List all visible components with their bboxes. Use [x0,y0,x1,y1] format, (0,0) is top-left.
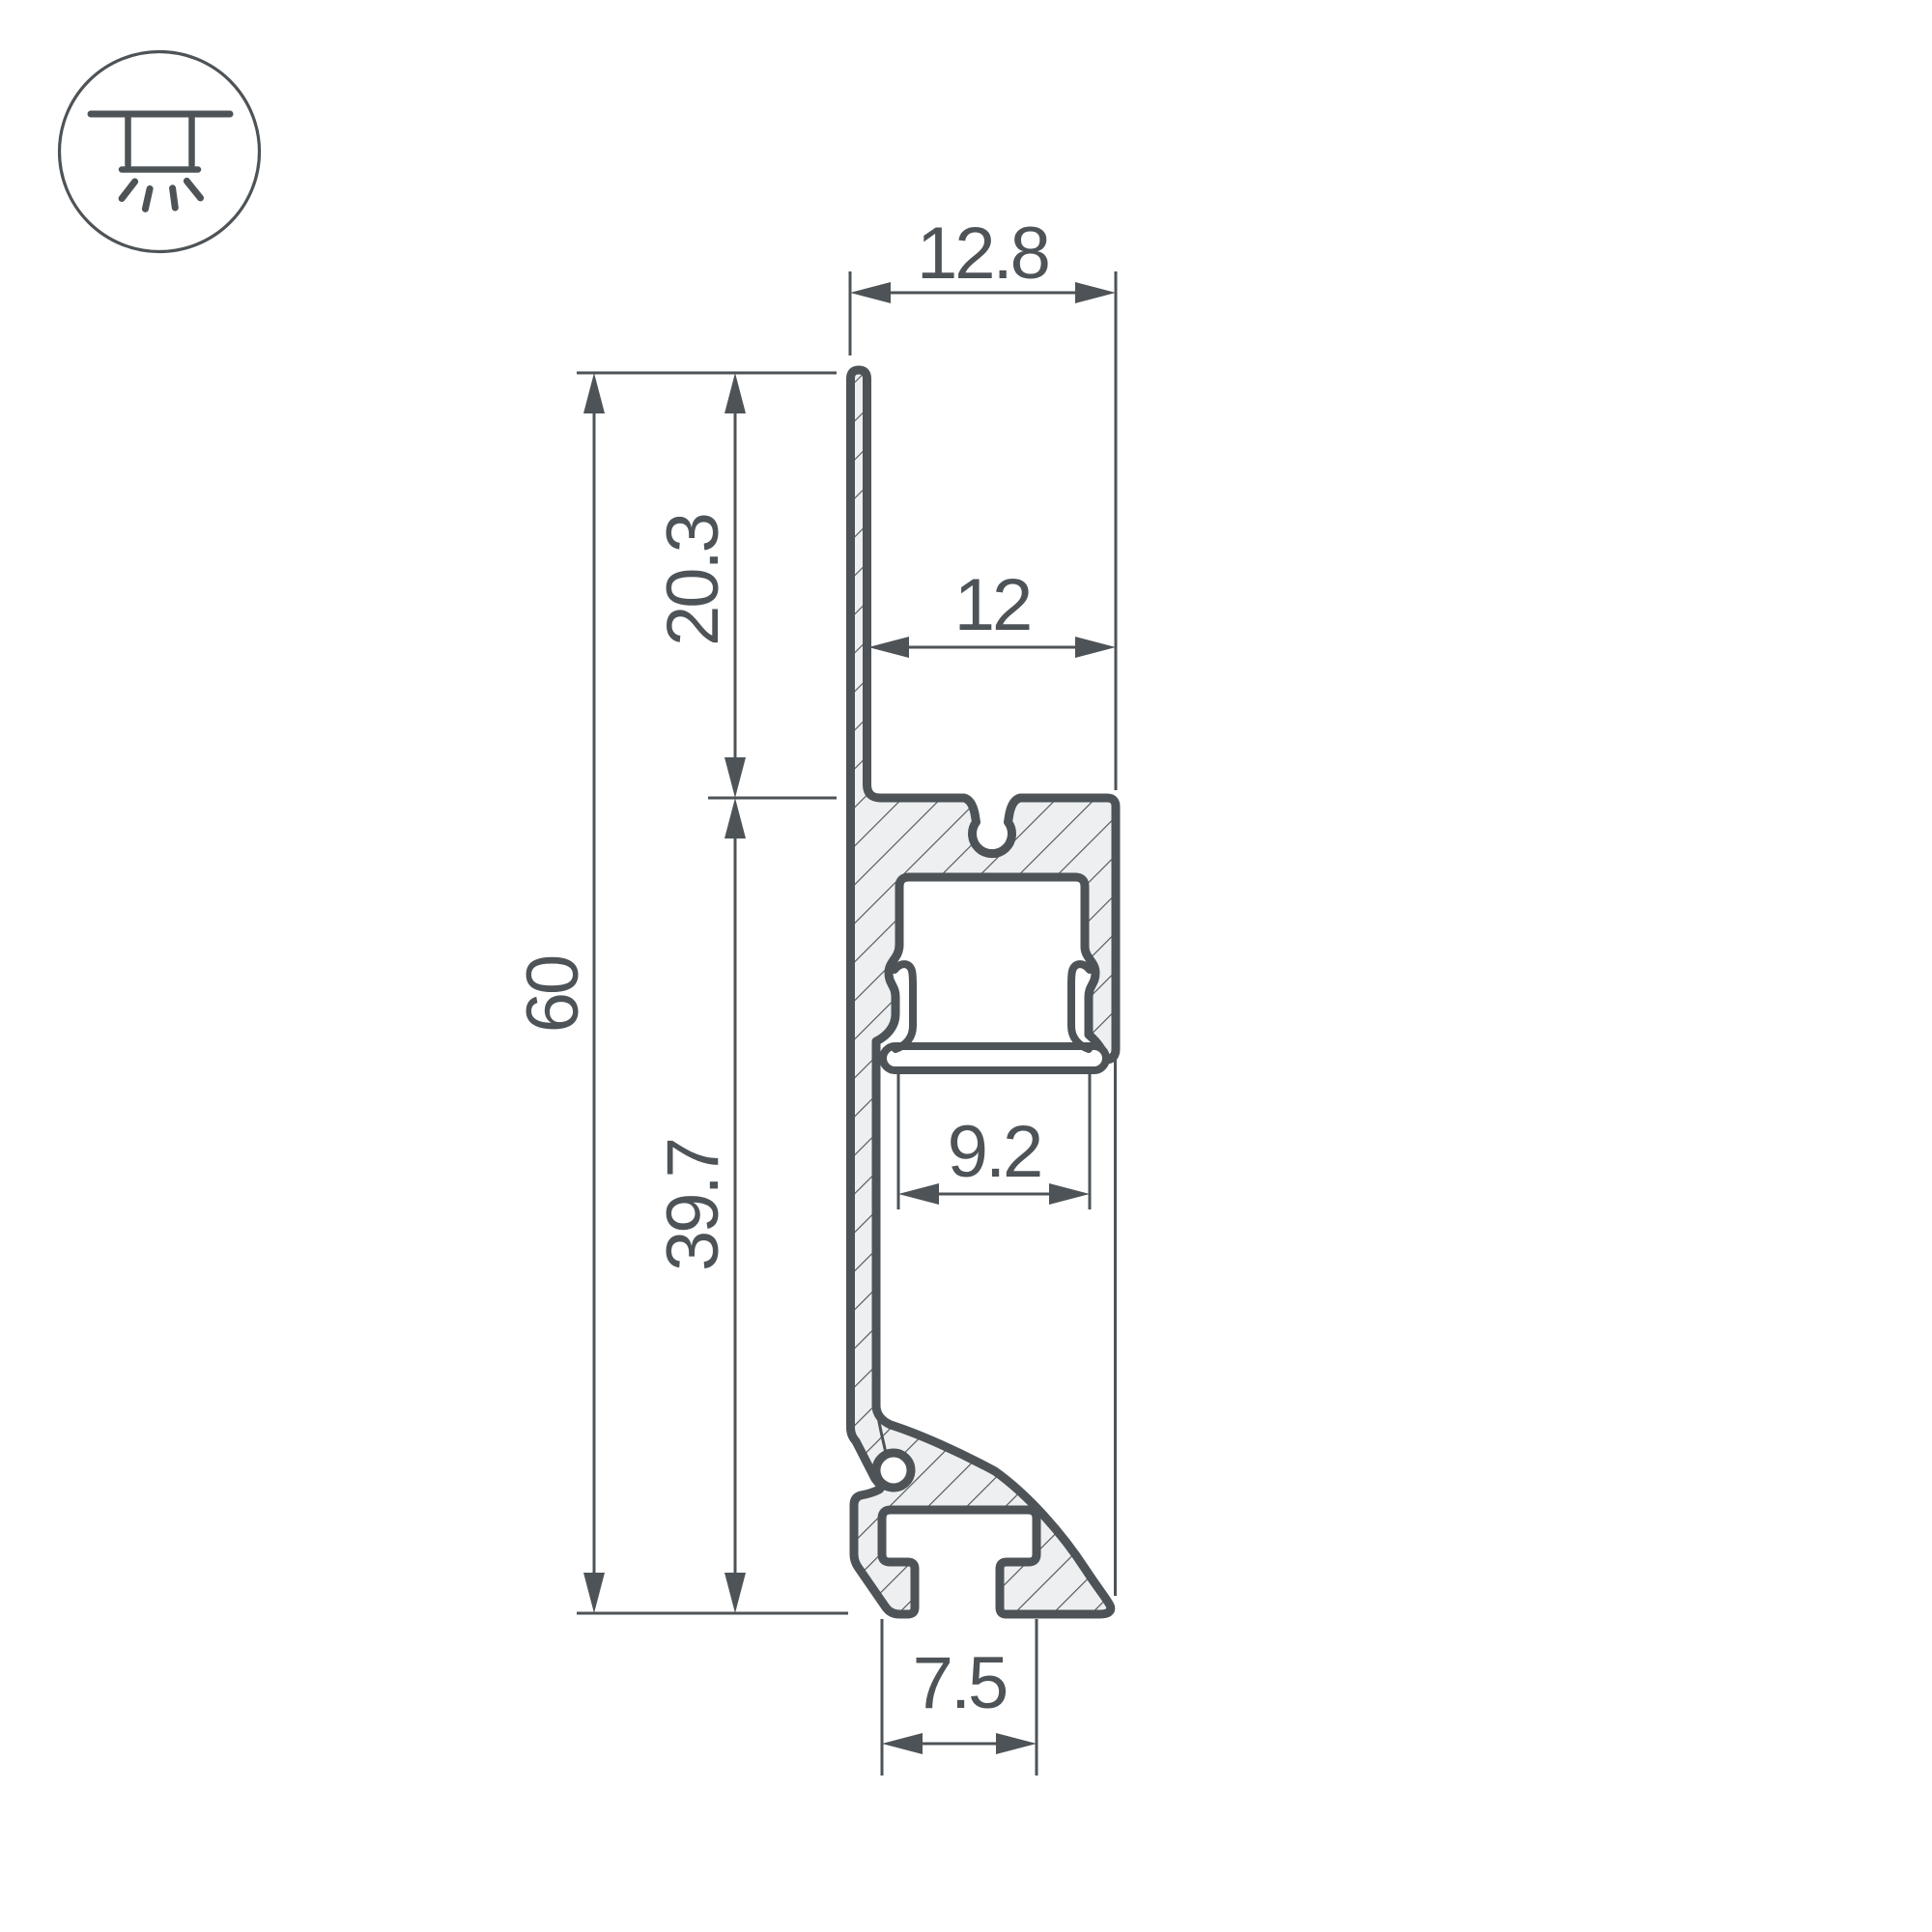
svg-text:12: 12 [954,564,1031,646]
svg-text:9.2: 9.2 [948,1111,1041,1193]
svg-text:20.3: 20.3 [652,515,734,646]
svg-text:39.7: 39.7 [652,1140,734,1271]
svg-text:7.5: 7.5 [913,1642,1007,1724]
svg-text:12.8: 12.8 [917,213,1048,295]
svg-text:60: 60 [512,956,594,1033]
